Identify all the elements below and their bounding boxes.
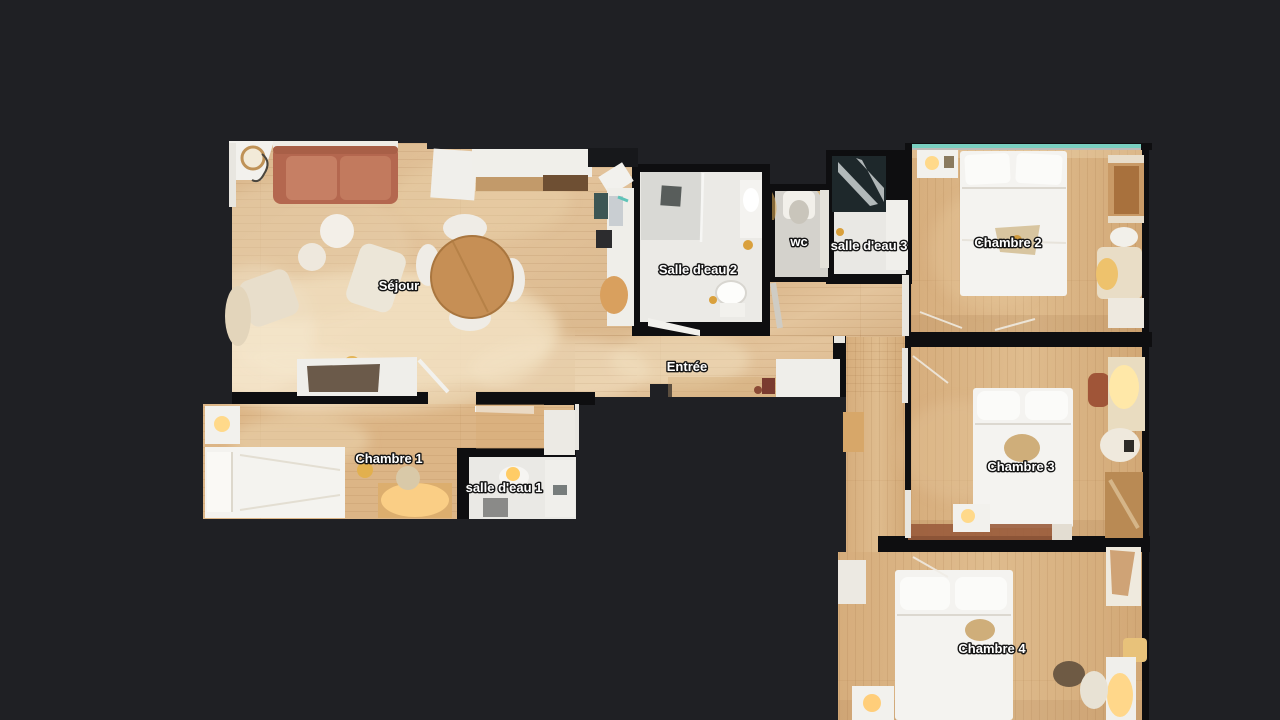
svg-text:Salle d'eau 2: Salle d'eau 2 [659,262,737,277]
svg-text:salle d'eau 3: salle d'eau 3 [831,238,908,253]
svg-text:Chambre 3: Chambre 3 [987,459,1054,474]
svg-text:Entrée: Entrée [667,359,707,374]
svg-text:Chambre 2: Chambre 2 [974,235,1041,250]
svg-text:Chambre 4: Chambre 4 [958,641,1026,656]
svg-text:Chambre 1: Chambre 1 [355,451,422,466]
svg-text:wc: wc [789,234,807,249]
svg-text:salle d'eau 1: salle d'eau 1 [466,480,543,495]
svg-text:Séjour: Séjour [379,278,419,293]
